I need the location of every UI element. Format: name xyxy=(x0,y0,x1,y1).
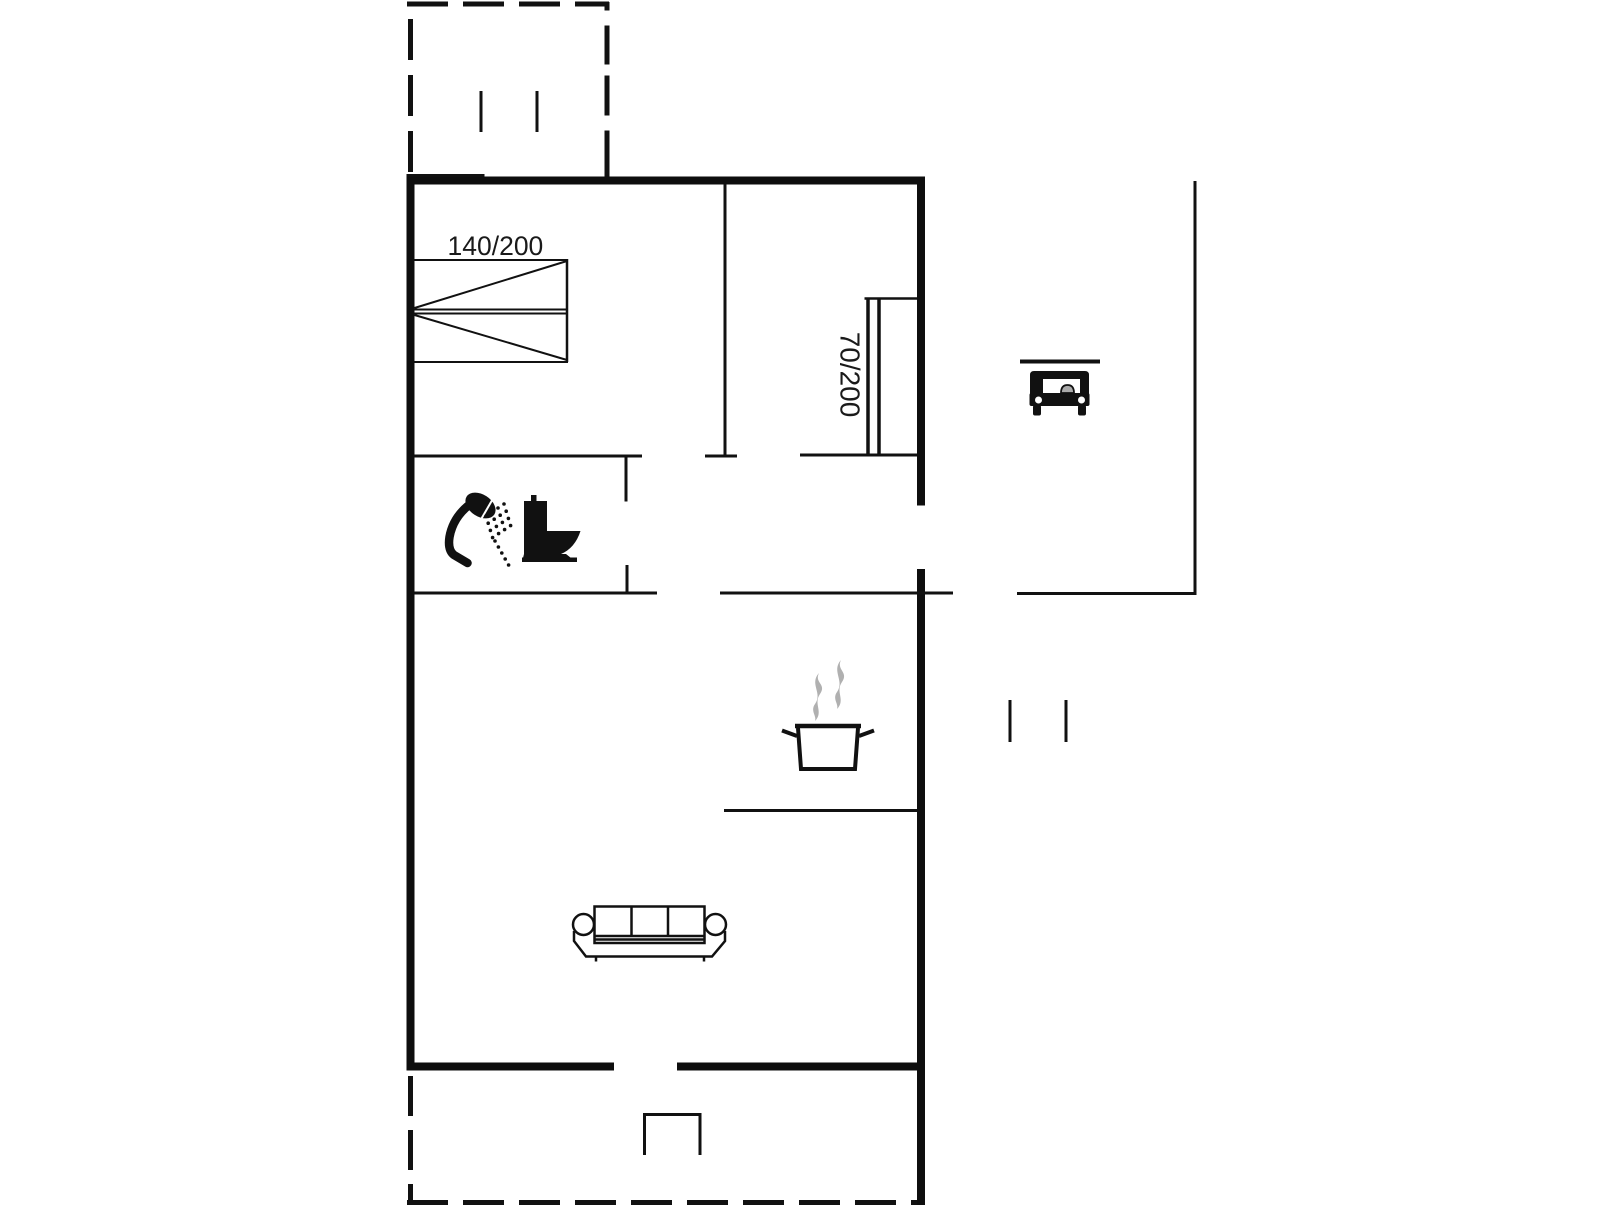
svg-text:140/200: 140/200 xyxy=(448,231,544,261)
svg-text:70/200: 70/200 xyxy=(835,332,866,418)
